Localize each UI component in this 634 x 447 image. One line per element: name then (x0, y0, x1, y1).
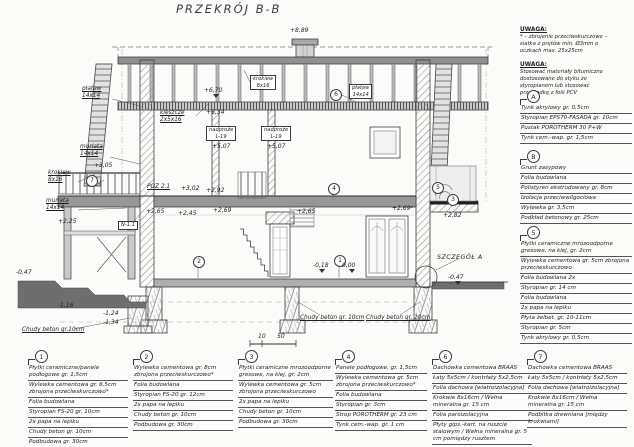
legend-line: Podbudowa gr. 30cm (133, 421, 233, 431)
level-m0-18: -0,18 (313, 263, 329, 270)
legend-2: 2Wylewka cementowa gr. 8cm zbrojona prze… (133, 350, 233, 431)
level-2-69-right: +2,69* (392, 206, 413, 213)
level-6-34: +6,34 (206, 110, 224, 117)
legend-line: Płyta żelbet. gr. 10-11cm (520, 314, 632, 324)
note-heading: UWAGA: (520, 27, 632, 33)
legend-header: 2 (133, 350, 233, 363)
label-murlata-upper: murłata 14x14 (80, 144, 103, 157)
legend-line: Wylewka cementowa gr. 5cm zbrojona przec… (520, 257, 632, 274)
ref-circle-4: 4 (328, 183, 340, 195)
legend-header: 4 (335, 350, 427, 363)
legend-line: Chudy beton gr. 10cm (238, 408, 333, 418)
level-2-69-mid: +2,69 (213, 208, 231, 215)
legend-line: Podbitka drewniana [między krokwiami] (527, 411, 627, 428)
note-body: * – zbrojenie przeciwskurczowe – siatka … (520, 34, 632, 55)
legend-line: Podkład betonowy gr. 25cm (520, 214, 632, 224)
legend-header: 3 (238, 350, 333, 363)
legend-line: Krokwie 8x16cm / Wełna mineralna gr. 15 … (527, 394, 627, 411)
legend-ref-circle: 4 (342, 350, 355, 363)
label-kleszcze: kleszcze 2x5x16 (160, 110, 184, 123)
legend-line: Panele podłogowe, gr. 1,5cm (335, 364, 427, 374)
note-1: UWAGA:* – zbrojenie przeciwskurczowe – s… (520, 27, 632, 55)
legend-ref-circle: 2 (140, 350, 153, 363)
legend-lines: Dachówka cementowa BRAASŁaty 5x5cm / kon… (527, 364, 627, 428)
legend-A: ATynk akrylowy gr. 0,5cmStyropian EPS70-… (520, 90, 632, 144)
level-0-00: 0,00 (342, 263, 355, 270)
legend-line: Strop POROTHERM gr. 23 cm (335, 411, 427, 421)
label-nadproze-1: nadproże L-19 (206, 126, 236, 141)
ref-circle-7: 7 (86, 175, 98, 187)
label-krokiew-left: krokiew 8x16 (48, 170, 71, 183)
level-2-25: +2,25 (58, 219, 76, 226)
level-2-92: +2,92 (206, 188, 224, 195)
legend-line: Folia budowlana 2x (520, 274, 632, 284)
legend-7: 7Dachówka cementowa BRAASŁaty 5x5cm / ko… (527, 350, 627, 428)
legend-ref-circle: 3 (245, 350, 258, 363)
legend-line: Styropian FS-20 gr. 12cm (133, 391, 233, 401)
legend-lines: Grunt zasypowyFolia budowlanaPolistyren … (520, 164, 632, 224)
attic-window (370, 127, 400, 158)
legend-line: Płytki ceramiczne mrozoodporne gresowe, … (238, 364, 333, 381)
legend-line: Dachówka cementowa BRAAS (432, 364, 532, 374)
level-2-45: +2,45 (178, 211, 196, 218)
legend-header: 5 (520, 226, 632, 239)
level-5-07-b: +5,07 (267, 144, 285, 151)
legend-header: A (520, 90, 632, 103)
drawing-sheet: PRZEKRÓJ B-B (0, 0, 634, 447)
legend-header: 1 (28, 350, 128, 363)
label-krokiew-box: krokiew 8x16 (250, 75, 276, 90)
legend-ref-circle: 1 (35, 350, 48, 363)
legend-header: B (520, 150, 632, 163)
legend-header: 7 (527, 350, 627, 363)
legend-ref-circle: B (527, 150, 540, 163)
legend-line: Grunt zasypowy (520, 164, 632, 174)
level-6-70: +6,70 (204, 88, 222, 95)
label-chudy-beton-mid: Chudy beton gr. 10cm (300, 315, 364, 322)
level-2-65-left: +2,65 (146, 209, 164, 216)
legend-lines: Płytki ceramiczne mrozoodporne gresowe, … (520, 240, 632, 344)
legend-line: Płytki ceramiczne/panele podłogowe gr. 1… (28, 364, 128, 381)
legend-line: Folia budowlana (520, 294, 632, 304)
ground-window (366, 216, 408, 277)
legend-line: Krokwie 8x16cm / Wełna mineralna gr. 15 … (432, 394, 532, 411)
level-m0-47-right: -0,47 (448, 275, 464, 282)
legend-lines: Panele podłogowe, gr. 1,5cmWylewka cemen… (335, 364, 427, 431)
legend-line: Folia budowlana (28, 398, 128, 408)
legend-line: Styropian FS-20 gr. 10cm (28, 408, 128, 418)
label-beam-n11: N-1.1 (118, 221, 138, 230)
legend-line: Styropian gr. 5cm (520, 324, 632, 334)
legend-line: 2x papa na lepiku (28, 418, 128, 428)
label-chudy-beton-right: Chudy beton gr. 10cm (366, 315, 430, 322)
legend-line: Styropian gr. 14 cm (520, 284, 632, 294)
note-heading: UWAGA: (520, 62, 632, 68)
legend-5: 5Płytki ceramiczne mrozoodporne gresowe,… (520, 226, 632, 344)
legend-line: Folia budowlana (133, 381, 233, 391)
legend-lines: Płytki ceramiczne mrozoodporne gresowe, … (238, 364, 333, 428)
legend-line: Wylewka cementowa gr. 8cm zbrojona przec… (133, 364, 233, 381)
legend-line: Dachówka cementowa BRAAS (527, 364, 627, 374)
legend-line: Izolacja przeciwwilgociowa (520, 194, 632, 204)
legend-line: Folia budowlana (335, 391, 427, 401)
level-8-89: +8,89 (290, 28, 308, 35)
legend-lines: Płytki ceramiczne/panele podłogowe gr. 1… (28, 364, 128, 447)
legend-line: Wylewka cementowa gr. 5cm zbrojona przec… (238, 381, 333, 398)
legend-6: 6Dachówka cementowa BRAASŁaty 5x5cm / ko… (432, 350, 532, 445)
legend-line: Polistyren ekstrudowany gr. 8cm (520, 184, 632, 194)
legend-line: Płyty gips.-kart. na ruszcie stalowym / … (432, 421, 532, 445)
legend-line: Tynk cem.-wap. gr. 1 cm (335, 421, 427, 431)
legend-line: Tynk cem.-wap. gr. 1,5cm (520, 134, 632, 144)
legend-line: Łaty 5x5cm / kontrłaty 5x2,5cm (432, 374, 532, 384)
legend-ref-circle: 5 (527, 226, 540, 239)
legend-1: 1Płytki ceramiczne/panele podłogowe gr. … (28, 350, 128, 447)
label-szczegol-a: SZCZEGÓŁ A (437, 254, 483, 261)
legend-line: Podbudowa gr. 30cm (28, 438, 128, 447)
level-3-05: +3,05 (94, 163, 112, 170)
label-nadproze-2: nadproże L-19 (261, 126, 291, 141)
legend-line: Folia paroizolacyjna (432, 411, 532, 421)
ref-circle-2: 2 (193, 256, 205, 268)
level-3-02: +3,02 (181, 186, 199, 193)
label-platew-box: płatew 14x14 (349, 84, 372, 99)
legend-line: Podbudowa gr. 30cm (238, 418, 333, 428)
legend-line: Łaty 5x5cm / kontrłaty 5x2,5cm (527, 374, 627, 384)
legend-4: 4Panele podłogowe, gr. 1,5cmWylewka ceme… (335, 350, 427, 431)
level-m1-34: -1,34 (103, 320, 119, 327)
roof-structure (118, 57, 488, 110)
legend-line: 2x papa na lepiku (520, 304, 632, 314)
label-chudy-beton-left: Chudy beton gr.10cm (22, 327, 85, 334)
ref-circle-6: 6 (330, 89, 342, 101)
level-5-07-a: +5,07 (212, 144, 230, 151)
ref-circle-3: 3 (447, 194, 459, 206)
legend-line: 2x papa na lepiku (238, 398, 333, 408)
legend-ref-circle: 6 (439, 350, 452, 363)
legend-line: Płytki ceramiczne mrozoodporne gresowe, … (520, 240, 632, 257)
legend-3: 3Płytki ceramiczne mrozoodporne gresowe,… (238, 350, 333, 428)
legend-line: 2x papa na lepiku (133, 401, 233, 411)
legend-line: Tynk akrylowy gr. 0,5cm (520, 104, 632, 114)
level-m1-16: -1,16 (58, 303, 74, 310)
chimney (292, 39, 318, 57)
legend-line: Wylewka cementowa gr. 6,5cm zbrojona prz… (28, 381, 128, 398)
legend-ref-circle: A (527, 90, 540, 103)
legend-lines: Wylewka cementowa gr. 8cm zbrojona przec… (133, 364, 233, 431)
legend-line: Styropian EPS70-FASADA gr. 10cm (520, 114, 632, 124)
legend-line: Pustak POROTHERM 30 P+W (520, 124, 632, 134)
level-2-65-mid: +2,65 (297, 209, 315, 216)
legend-line: Styropian gr. 3cm (335, 401, 427, 411)
legend-line: Folia dachowa [wiatroizolacyjna] (527, 384, 627, 394)
level-m0-47-left: -0,47 (16, 270, 32, 277)
legend-header: 6 (432, 350, 532, 363)
label-poz-2-1: POZ 2.1 (147, 184, 170, 191)
legend-line: Folia dachowa [wiatroizolacyjna] (432, 384, 532, 394)
label-murlata-lower: murłata 14x14 (46, 198, 69, 211)
scale-tick-50: 50 (277, 334, 285, 341)
legend-line: Wylewka cementowa gr. 5cm zbrojona przec… (335, 374, 427, 391)
ref-circle-5: 5 (432, 182, 444, 194)
legend-lines: Dachówka cementowa BRAASŁaty 5x5cm / kon… (432, 364, 532, 445)
level-2-82: +2,82 (443, 213, 461, 220)
scale-bar (250, 340, 296, 347)
legend-line: Folia budowlana (520, 174, 632, 184)
legend-line: Chudy beton gr. 10cm (28, 428, 128, 438)
level-m1-24: -1,24 (103, 311, 119, 318)
legend-line: Chudy beton gr. 10cm (133, 411, 233, 421)
legend-line: Tynk akrylowy gr. 0,5cm (520, 334, 632, 344)
legend-ref-circle: 7 (534, 350, 547, 363)
legend-line: Wylewka gr. 3,5cm (520, 204, 632, 214)
legend-lines: Tynk akrylowy gr. 0,5cmStyropian EPS70-F… (520, 104, 632, 144)
ground-door (270, 224, 290, 277)
legend-B: BGrunt zasypowyFolia budowlanaPolistyren… (520, 150, 632, 224)
scale-tick-10: 10 (258, 334, 266, 341)
label-platew-left: płatew 14x14 (82, 86, 101, 99)
